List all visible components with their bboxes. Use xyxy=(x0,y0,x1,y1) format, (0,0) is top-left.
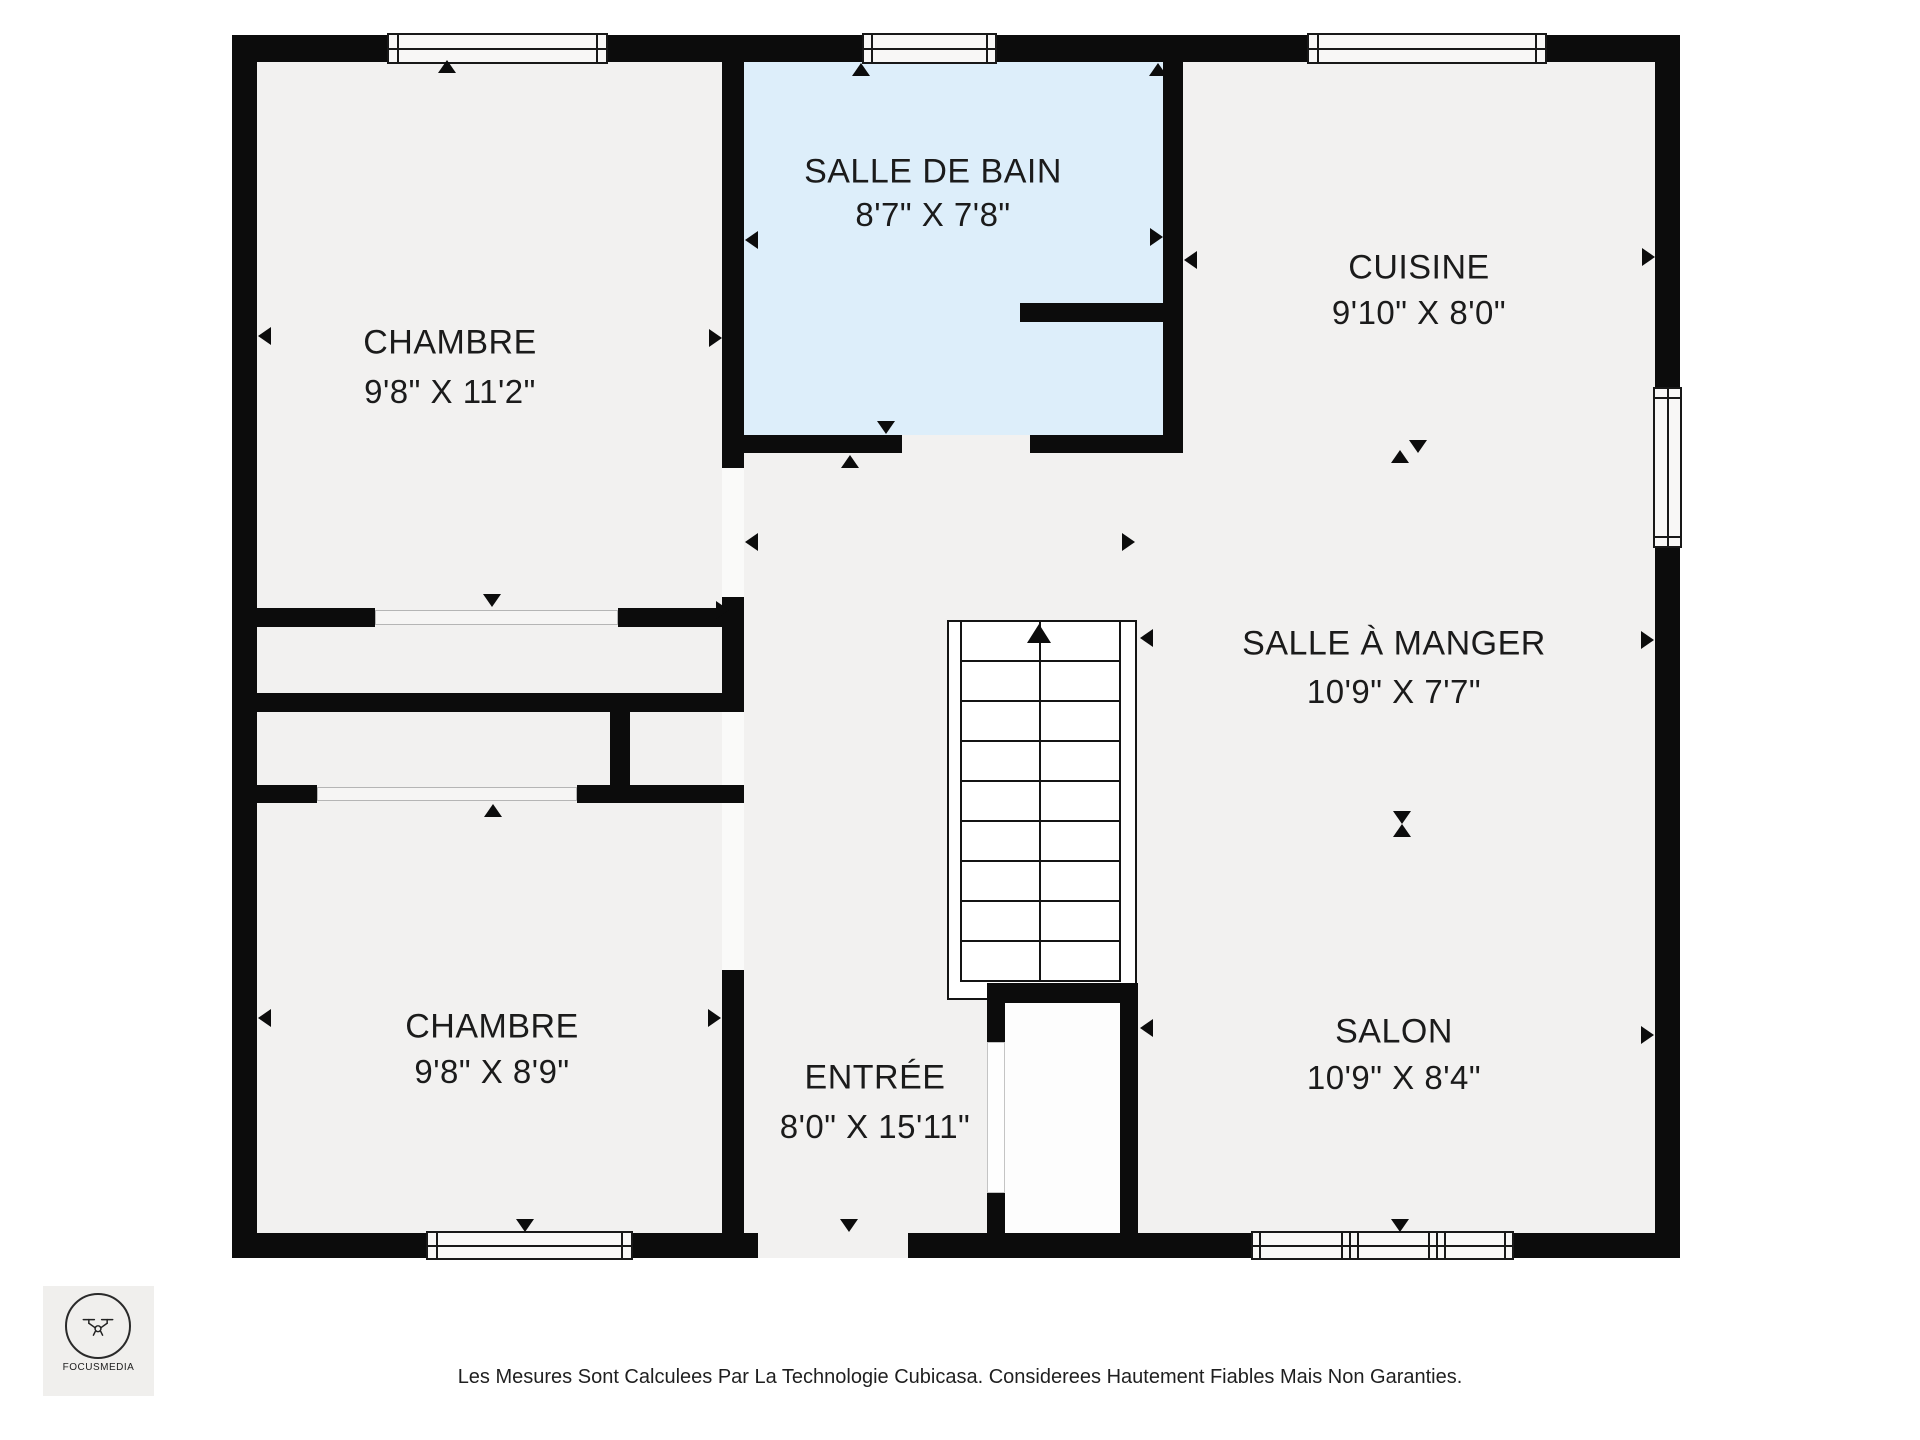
marker-icon xyxy=(840,1219,858,1232)
door-opening-bath xyxy=(902,435,1030,453)
opening-hall-nook xyxy=(722,712,744,785)
room-dims-salle-a-manger: 10'9" X 7'7" xyxy=(1307,673,1481,711)
door-opening-bed1 xyxy=(722,468,744,597)
marker-icon xyxy=(1641,631,1654,649)
window-salon-bottom-3 xyxy=(1436,1231,1514,1260)
understairs-closet-floor xyxy=(1005,1003,1120,1233)
window-bed1-top xyxy=(387,33,608,64)
wall-bath-bottom-left xyxy=(722,435,902,453)
sliding-door-bed2-closet xyxy=(317,787,577,801)
wall-bed2-top-left xyxy=(257,785,317,803)
room-label-salle-a-manger: SALLE À MANGER xyxy=(1242,625,1546,664)
marker-icon xyxy=(877,421,895,434)
room-dims-entree: 8'0" X 15'11" xyxy=(780,1108,971,1146)
drone-icon xyxy=(76,1304,120,1348)
disclaimer-text: Les Mesures Sont Calculees Par La Techno… xyxy=(0,1366,1920,1389)
wall-closet-divider xyxy=(610,712,630,785)
room-label-salon: SALON xyxy=(1335,1013,1453,1052)
bathroom-floor xyxy=(744,62,1163,453)
marker-icon xyxy=(745,231,758,249)
front-door xyxy=(758,1233,908,1258)
room-dims-chambre-2: 9'8" X 8'9" xyxy=(414,1053,569,1091)
wall-bed2-right xyxy=(722,970,744,1233)
wall-bath-stub xyxy=(1020,303,1163,322)
marker-icon xyxy=(1641,1026,1654,1044)
marker-icon xyxy=(1184,251,1197,269)
stair-center-line xyxy=(1039,622,1041,982)
logo-circle xyxy=(65,1293,131,1359)
stairs-up-arrow-icon xyxy=(1027,624,1051,643)
window-dining-right xyxy=(1653,387,1682,548)
marker-icon xyxy=(258,1009,271,1027)
window-bed2-bottom xyxy=(426,1231,633,1260)
door-opening-bed2 xyxy=(722,803,744,970)
marker-icon xyxy=(1140,629,1153,647)
marker-icon xyxy=(1642,248,1655,266)
marker-icon xyxy=(484,804,502,817)
wall-closet-middle xyxy=(257,693,744,712)
staircase xyxy=(947,620,1137,1000)
marker-icon xyxy=(1149,63,1167,76)
marker-icon xyxy=(708,1009,721,1027)
wall-outer-left xyxy=(232,35,257,1258)
marker-icon xyxy=(1409,440,1427,453)
marker-icon xyxy=(745,533,758,551)
wall-closet-left-upper xyxy=(987,1003,1005,1042)
marker-icon xyxy=(1393,811,1411,824)
marker-icon xyxy=(1393,824,1411,837)
marker-icon xyxy=(852,63,870,76)
sliding-door-bed1-closet xyxy=(375,610,618,625)
marker-icon xyxy=(716,601,729,619)
room-label-chambre-2: CHAMBRE xyxy=(405,1008,579,1047)
floor-plan-page: CHAMBRE 9'8" X 11'2" SALLE DE BAIN 8'7" … xyxy=(0,0,1920,1440)
marker-icon xyxy=(438,60,456,73)
window-kitchen-top xyxy=(1307,33,1547,64)
wall-bed1-bath-divider xyxy=(722,62,744,468)
wall-closet-left-lower xyxy=(987,1193,1005,1233)
marker-icon xyxy=(1391,450,1409,463)
marker-icon xyxy=(709,329,722,347)
room-label-entree: ENTRÉE xyxy=(805,1059,946,1098)
window-bath-top xyxy=(862,33,997,64)
room-dims-chambre-1: 9'8" X 11'2" xyxy=(364,373,536,411)
marker-icon xyxy=(1122,533,1135,551)
window-salon-bottom-1 xyxy=(1251,1231,1351,1260)
marker-icon xyxy=(483,594,501,607)
room-label-cuisine: CUISINE xyxy=(1348,249,1489,288)
closet-door xyxy=(987,1042,1005,1193)
room-dims-cuisine: 9'10" X 8'0" xyxy=(1332,294,1506,332)
window-salon-bottom-2 xyxy=(1349,1231,1438,1260)
marker-icon xyxy=(258,327,271,345)
wall-bath-bottom-right xyxy=(1030,435,1183,453)
wall-understairs-top xyxy=(987,983,1138,1003)
room-dims-salon: 10'9" X 8'4" xyxy=(1307,1059,1481,1097)
marker-icon xyxy=(1150,228,1163,246)
marker-icon xyxy=(841,455,859,468)
wall-bed2-top-right xyxy=(577,785,744,803)
marker-icon xyxy=(516,1219,534,1232)
marker-icon xyxy=(1391,1219,1409,1232)
wall-closet-right xyxy=(1120,998,1138,1233)
room-dims-salle-de-bain: 8'7" X 7'8" xyxy=(855,196,1010,234)
marker-icon xyxy=(1140,1019,1153,1037)
wall-bed1-bottom-left xyxy=(257,608,375,627)
room-label-chambre-1: CHAMBRE xyxy=(363,324,537,363)
wall-outer-right xyxy=(1655,35,1680,1258)
wall-bath-kitchen-divider xyxy=(1163,35,1183,453)
room-label-salle-de-bain: SALLE DE BAIN xyxy=(804,153,1062,192)
